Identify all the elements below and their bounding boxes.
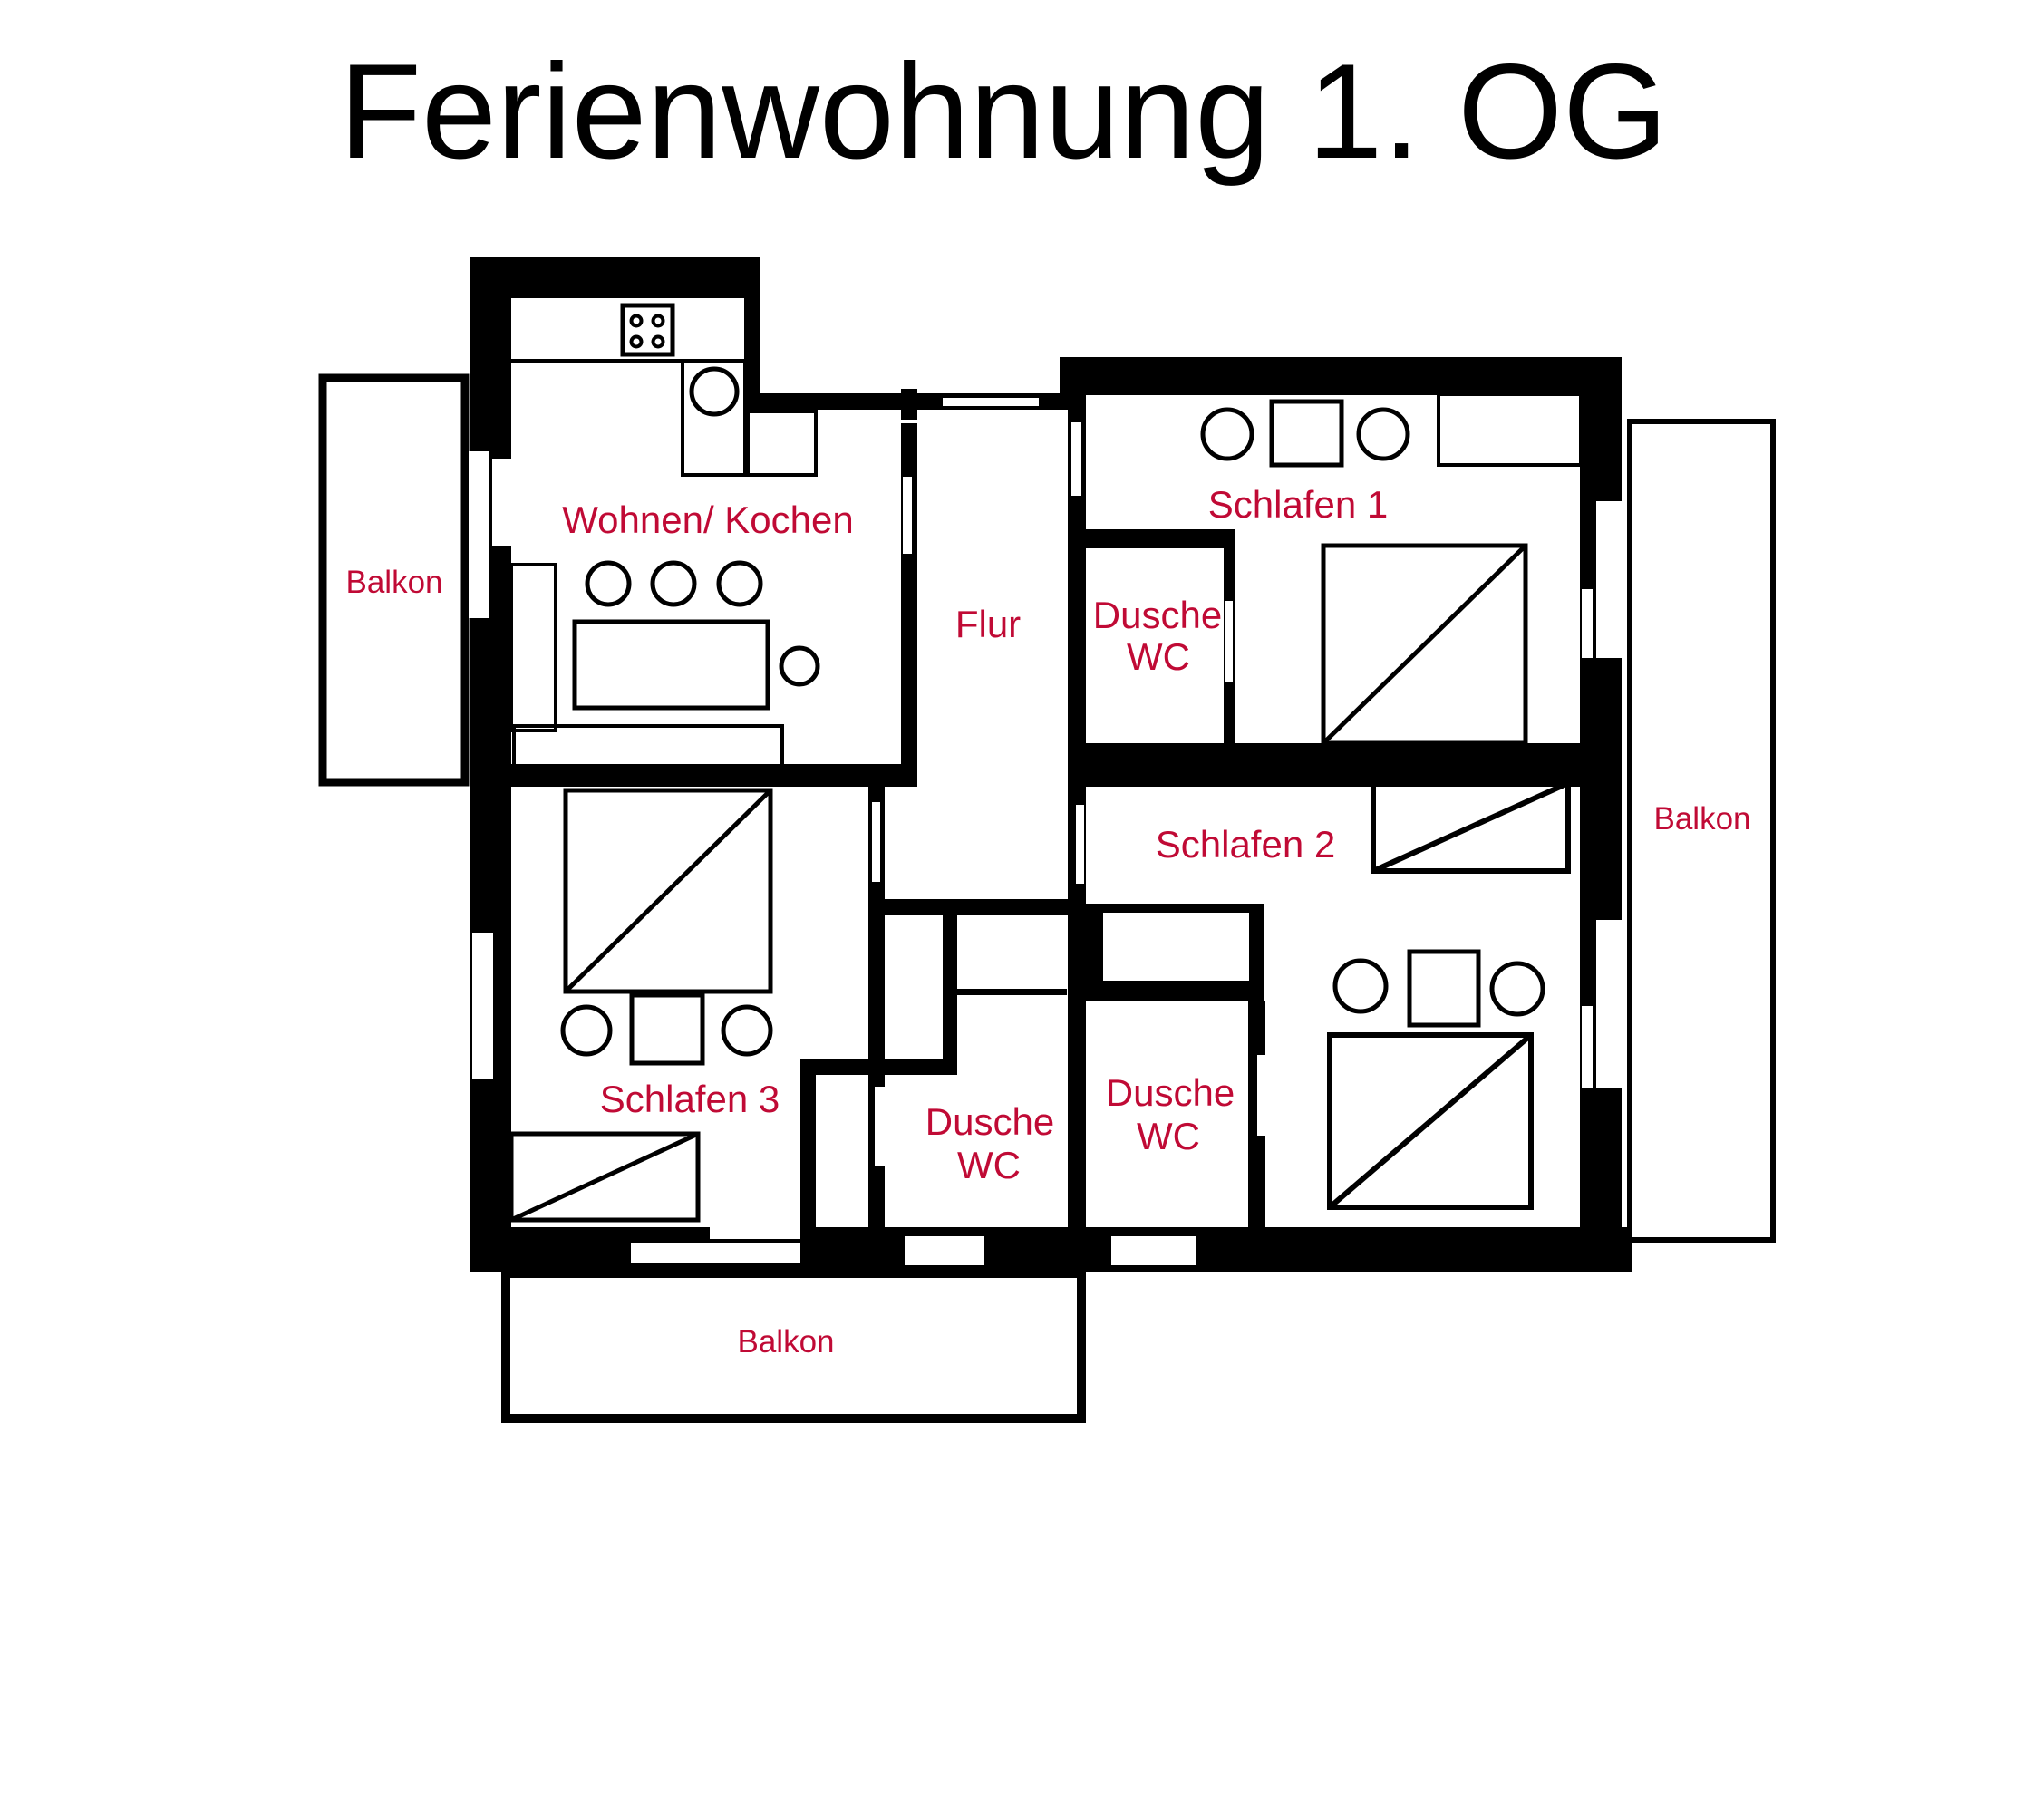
svg-text:WC: WC (1137, 1115, 1200, 1157)
svg-text:Balkon: Balkon (1653, 801, 1750, 837)
svg-text:Ferienwohnung 1. OG: Ferienwohnung 1. OG (339, 35, 1668, 187)
svg-text:WC: WC (1127, 635, 1190, 678)
svg-text:Balkon: Balkon (345, 565, 442, 600)
svg-text:Schlafen 3: Schlafen 3 (600, 1078, 780, 1120)
svg-text:Dusche: Dusche (925, 1100, 1054, 1143)
svg-text:Balkon: Balkon (737, 1324, 834, 1359)
svg-text:Schlafen 2: Schlafen 2 (1156, 823, 1335, 866)
svg-text:Dusche: Dusche (1093, 594, 1222, 636)
svg-text:Wohnen/ Kochen: Wohnen/ Kochen (562, 498, 853, 541)
svg-text:Dusche: Dusche (1106, 1071, 1235, 1114)
svg-text:Flur: Flur (955, 603, 1021, 645)
svg-text:WC: WC (957, 1144, 1021, 1186)
svg-text:Schlafen 1: Schlafen 1 (1208, 483, 1388, 526)
